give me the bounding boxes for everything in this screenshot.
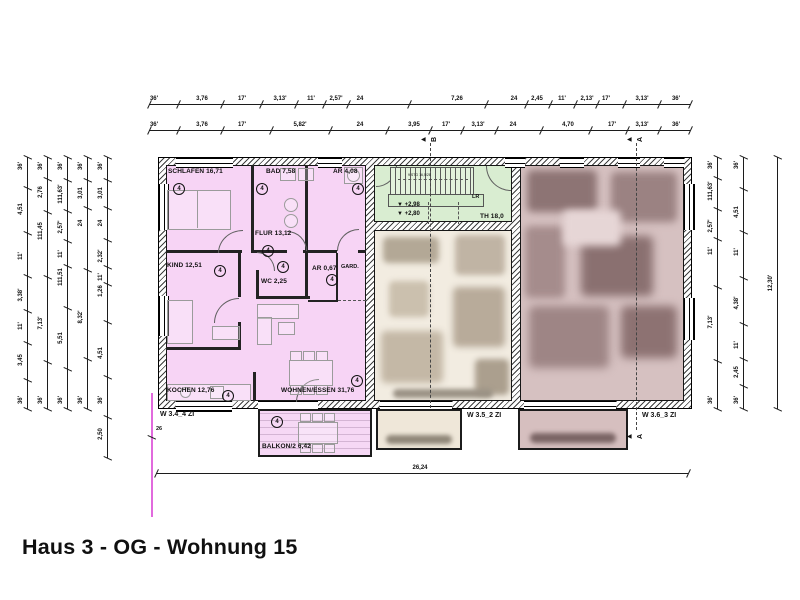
section-line (636, 143, 637, 430)
drawing-title: Haus 3 - OG - Wohnung 15 (22, 535, 298, 560)
section-arrow-icon: ◀ (627, 136, 632, 143)
floorplan-sheet: SCHLAFEN 16,71BAD 7,58AR 4,08FLUR 13,12K… (0, 0, 800, 600)
section-letter: B (431, 137, 438, 142)
section-marker-layer: ◀B◀A◀A (0, 0, 800, 600)
section-letter: A (637, 137, 644, 142)
section-arrow-icon: ◀ (627, 433, 632, 440)
section-letter: A (637, 434, 644, 439)
section-arrow-icon: ◀ (421, 136, 426, 143)
section-line (430, 143, 431, 408)
